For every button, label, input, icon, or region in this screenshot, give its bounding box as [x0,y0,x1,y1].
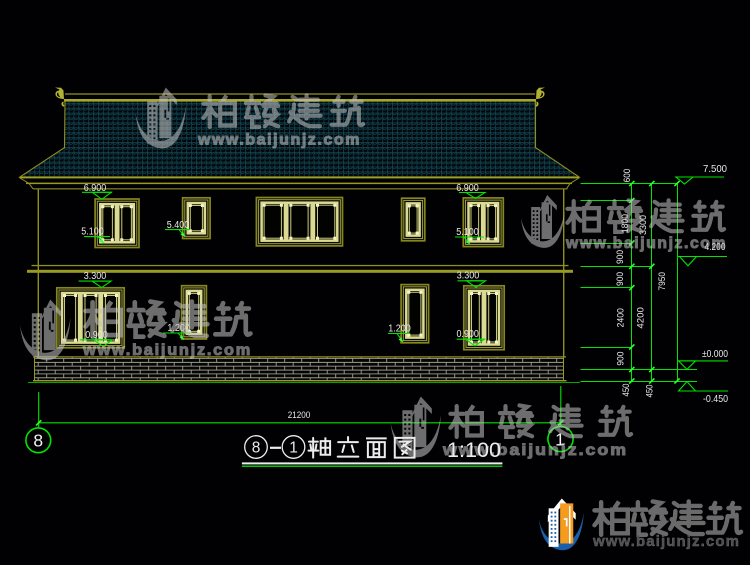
svg-text:1:100: 1:100 [447,438,501,462]
svg-text:1.200: 1.200 [388,323,411,334]
svg-text:900: 900 [615,272,626,286]
svg-text:0.900: 0.900 [456,329,479,340]
svg-text:5.100: 5.100 [456,227,479,238]
svg-text:www.baijunjz.com: www.baijunjz.com [592,533,740,550]
svg-text:±0.000: ±0.000 [702,348,728,360]
svg-text:8: 8 [252,440,261,457]
svg-text:450: 450 [645,385,656,398]
svg-text:4200: 4200 [636,307,647,329]
svg-text:8: 8 [33,431,43,451]
svg-text:21200: 21200 [288,410,311,421]
svg-text:7950: 7950 [657,272,668,291]
svg-text:900: 900 [615,250,626,264]
svg-text:7.500: 7.500 [703,163,727,175]
svg-text:450: 450 [621,384,632,397]
svg-text:-0.450: -0.450 [703,393,728,405]
svg-text:2400: 2400 [615,308,626,328]
svg-text:3.300: 3.300 [84,271,107,282]
svg-text:www.baijunjz.com: www.baijunjz.com [565,235,727,252]
svg-text:900: 900 [616,352,627,366]
svg-text:www.baijunjz.com: www.baijunjz.com [197,132,361,149]
svg-text:1: 1 [289,440,298,457]
svg-text:3.300: 3.300 [457,271,480,282]
svg-text:5.100: 5.100 [81,227,104,238]
svg-text:www.baijunjz.com: www.baijunjz.com [82,342,252,359]
svg-text:600: 600 [622,169,633,183]
